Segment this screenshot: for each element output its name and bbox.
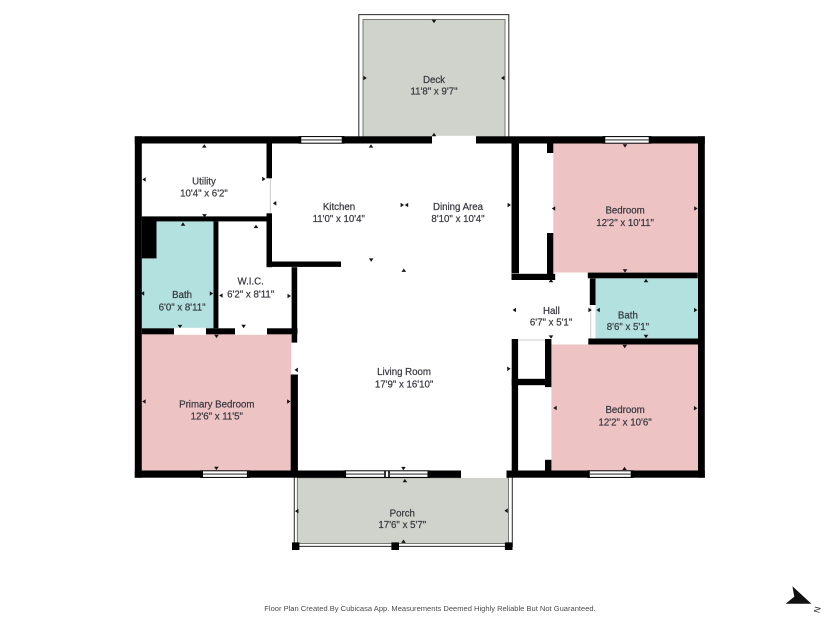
svg-text:Dining Area: Dining Area bbox=[433, 202, 484, 213]
svg-text:Bath: Bath bbox=[172, 290, 192, 301]
svg-text:10'4" x 6'2": 10'4" x 6'2" bbox=[180, 188, 228, 199]
svg-text:17'9" x 16'10": 17'9" x 16'10" bbox=[375, 379, 434, 390]
svg-text:12'2" x 10'6": 12'2" x 10'6" bbox=[599, 417, 653, 428]
svg-text:6'2" x 8'11": 6'2" x 8'11" bbox=[227, 289, 275, 300]
svg-text:Floor Plan Created By Cubicasa: Floor Plan Created By Cubicasa App. Meas… bbox=[264, 604, 595, 613]
svg-text:Living Room: Living Room bbox=[377, 367, 431, 378]
svg-text:Deck: Deck bbox=[423, 75, 445, 86]
svg-text:11'8" x 9'7": 11'8" x 9'7" bbox=[410, 86, 458, 97]
svg-text:12'6" x 11'5": 12'6" x 11'5" bbox=[191, 412, 244, 423]
svg-text:8'10" x 10'4": 8'10" x 10'4" bbox=[431, 214, 485, 225]
svg-text:Porch: Porch bbox=[390, 509, 415, 520]
svg-text:Bath: Bath bbox=[618, 311, 638, 322]
svg-text:Kitchen: Kitchen bbox=[323, 202, 355, 213]
svg-text:11'0" x 10'4": 11'0" x 10'4" bbox=[313, 214, 366, 225]
svg-text:12'2" x 10'11": 12'2" x 10'11" bbox=[596, 218, 654, 229]
svg-text:W.I.C.: W.I.C. bbox=[238, 276, 264, 287]
svg-text:Bedroom: Bedroom bbox=[605, 206, 644, 217]
svg-text:Utility: Utility bbox=[192, 176, 216, 187]
svg-text:6'0" x 8'11": 6'0" x 8'11" bbox=[159, 302, 207, 313]
svg-text:17'6" x 5'7": 17'6" x 5'7" bbox=[378, 520, 426, 531]
svg-text:Hall: Hall bbox=[543, 306, 560, 317]
svg-text:6'7" x 5'1": 6'7" x 5'1" bbox=[530, 318, 573, 329]
svg-text:8'6" x 5'1": 8'6" x 5'1" bbox=[607, 322, 650, 333]
svg-text:Primary Bedroom: Primary Bedroom bbox=[179, 399, 254, 410]
svg-text:Bedroom: Bedroom bbox=[605, 405, 644, 416]
